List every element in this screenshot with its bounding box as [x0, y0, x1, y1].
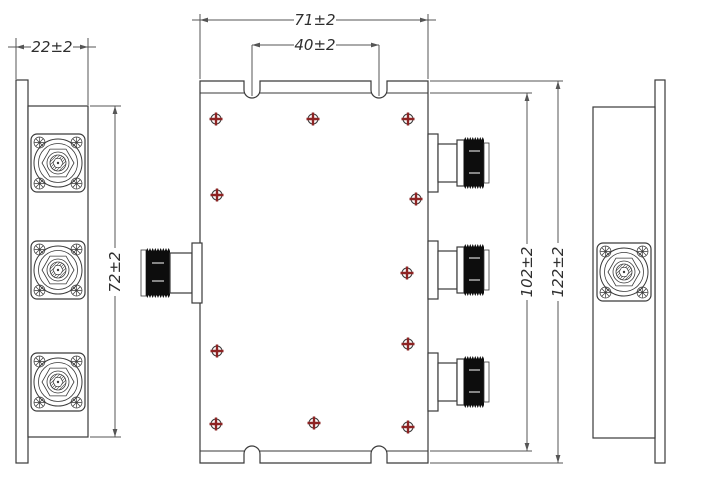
- power-divider-outline-drawing: 22±2 72±2: [0, 0, 720, 494]
- body-outline: [200, 81, 428, 463]
- n-connector-face-icon: [31, 134, 85, 192]
- mounting-plate-edge: [16, 80, 28, 463]
- front-view: [141, 81, 489, 463]
- dim-label-body-width: 71±2: [294, 11, 335, 29]
- input-connector-side: [141, 243, 202, 303]
- left-side-view: [16, 80, 88, 463]
- dim-label-side-width: 22±2: [31, 38, 72, 56]
- technical-drawing-canvas: 22±2 72±2: [0, 0, 720, 494]
- mounting-plate-edge: [655, 80, 665, 463]
- right-side-view: [593, 80, 665, 463]
- dim-label-slot-spacing: 40±2: [294, 36, 335, 54]
- n-connector-side-icon: [428, 353, 489, 411]
- n-connector-side-icon: [428, 134, 489, 192]
- dimension-side-height: 72±2: [90, 106, 124, 437]
- n-connector-face-icon: [597, 243, 651, 301]
- n-connector-face-icon: [31, 241, 85, 299]
- dim-label-inner-height: 102±2: [518, 247, 536, 298]
- n-connector-face-icon: [31, 353, 85, 411]
- dim-label-side-height: 72±2: [106, 251, 124, 292]
- n-connector-side-icon: [428, 241, 489, 299]
- dim-label-overall-height: 122±2: [549, 247, 567, 298]
